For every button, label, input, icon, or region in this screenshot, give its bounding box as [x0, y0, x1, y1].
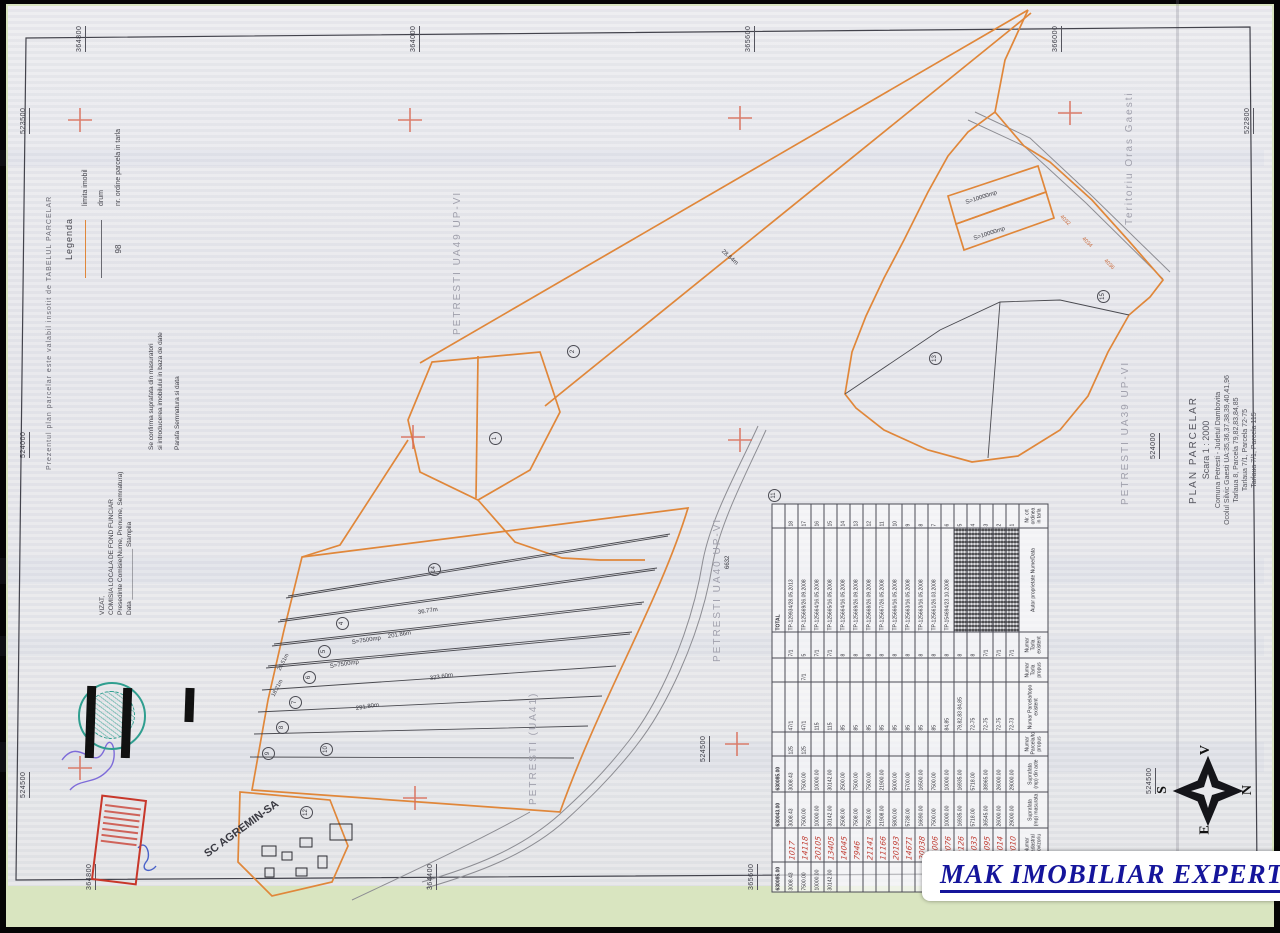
- parcel-ordinal: 9: [262, 747, 275, 760]
- table-row: 140452508.002500.00858TP-125664/16.05.20…: [837, 504, 850, 892]
- cell: TP-125663/16.05.2008: [915, 528, 928, 632]
- cell: [863, 658, 876, 682]
- title-line: Comuna Petresti - Judetul Dambovita: [1214, 325, 1223, 575]
- cell: 7500.00: [798, 862, 811, 892]
- cell: 30142.00: [824, 756, 837, 792]
- coord-label: 524000: [20, 432, 30, 458]
- cell: 47/1: [785, 682, 798, 732]
- cell: [928, 732, 941, 756]
- cell: TP-125666/16.05.2008: [889, 528, 902, 632]
- legend-sample: 98: [114, 220, 123, 278]
- cell: 1: [1006, 504, 1019, 528]
- header-cell: Suprafata (mp) masurata: [1019, 792, 1048, 828]
- cell: 7/1: [811, 632, 824, 658]
- cell: 16690.00: [915, 792, 928, 828]
- cell: 13405: [824, 827, 837, 863]
- cell: 85: [889, 682, 902, 732]
- title-line: Tarlaua 7/1, Parcela 115: [1250, 325, 1259, 575]
- cell: 14045: [837, 827, 850, 863]
- cell: 7500.00: [850, 756, 863, 792]
- cell: 29000.00: [1006, 756, 1019, 792]
- cell: 26000.00: [993, 756, 1006, 792]
- legend-item: drum: [98, 48, 105, 278]
- coord-label: 524500: [20, 772, 30, 798]
- cell: 16500.00: [915, 756, 928, 792]
- cell: 8: [915, 504, 928, 528]
- cell: 8: [954, 632, 967, 658]
- cell: 85: [837, 682, 850, 732]
- coord-label: 523500: [20, 108, 30, 134]
- cell: TP-129934/28.05.2013: [785, 528, 798, 632]
- parcel-ordinal: 10: [320, 743, 333, 756]
- title-block: PLAN PARCELARScara 1 : 2000Comuna Petres…: [1188, 325, 1268, 575]
- cell: 7/1: [993, 632, 1006, 658]
- cell: 85: [902, 682, 915, 732]
- parcel-ordinal: 8: [276, 721, 289, 734]
- coord-label: 366000: [1052, 26, 1062, 52]
- cell: 30142.00: [824, 862, 837, 892]
- cert-line: Data ______________ Stampila: [125, 430, 134, 615]
- cell: 8: [902, 632, 915, 658]
- cell: 5: [954, 504, 967, 528]
- legend-sample: [85, 220, 86, 278]
- cell: 47/1: [798, 682, 811, 732]
- cell: [993, 528, 1006, 632]
- legend-label: nr. ordine parcela in tarla: [115, 129, 122, 206]
- cell: [967, 528, 980, 632]
- cell: 7/1: [1006, 632, 1019, 658]
- cell: [889, 658, 902, 682]
- cell: 115: [824, 682, 837, 732]
- cell: 7946: [850, 827, 863, 863]
- region-label: PETRESTI UA39 UP-VI: [1120, 361, 1131, 505]
- cell: [772, 504, 785, 528]
- plan-border: [16, 27, 1257, 880]
- cell: [772, 682, 785, 732]
- cell: [772, 732, 785, 756]
- table-row: 10000.002010510000.0010000.001157/1TP-12…: [811, 504, 824, 892]
- cell: [941, 658, 954, 682]
- logo-text: MAK IMOBILIAR EXPERT: [940, 859, 1280, 893]
- cell: 8: [876, 632, 889, 658]
- cell: 72-75: [993, 682, 1006, 732]
- cert-line: Presedinte Comisie(Nume, Prenume, Semnat…: [116, 430, 125, 615]
- region-label: PETRESTI UA49 UP-VI: [452, 191, 463, 335]
- cell: 85: [915, 682, 928, 732]
- cell: [863, 862, 876, 892]
- cell: 85: [850, 682, 863, 732]
- cert-line: VIZAT,: [98, 430, 107, 615]
- title-line: Scara 1 : 2000: [1201, 325, 1211, 575]
- cell: [1006, 528, 1019, 632]
- cell: [837, 732, 850, 756]
- cell: [1006, 658, 1019, 682]
- cell: [889, 732, 902, 756]
- cell: 29000.00: [1006, 792, 1019, 828]
- cell: 8: [915, 632, 928, 658]
- cell: 38965.00: [980, 756, 993, 792]
- vizat-block: VIZAT,COMISIA LOCALA DE FOND FUNCIARPres…: [98, 430, 153, 615]
- cell: [811, 732, 824, 756]
- cell: [993, 658, 1006, 682]
- cell: 630085.00: [772, 862, 785, 892]
- cell: 10000.00: [941, 756, 954, 792]
- cell: 5800.00: [889, 792, 902, 828]
- cell: 630043.00: [772, 792, 785, 828]
- cell: [954, 732, 967, 756]
- cell: 10000.00: [941, 792, 954, 828]
- cell: [772, 828, 785, 862]
- cell: 16935.00: [954, 792, 967, 828]
- table-header-row: Suprafata (mp)Numar Cadastral Provizoriu…: [1019, 504, 1048, 892]
- cell: 7/1: [798, 658, 811, 682]
- header-cell: Numar Parcela/topo propus: [1019, 732, 1048, 756]
- cell: [824, 658, 837, 682]
- cell: 7500.00: [863, 756, 876, 792]
- coord-label: 522800: [1244, 108, 1254, 134]
- cell: 36545.00: [980, 792, 993, 828]
- table-row: 146715738.005700.00858TP-125663/16.05.20…: [902, 504, 915, 892]
- cell: [915, 658, 928, 682]
- cell: [980, 732, 993, 756]
- cell: TP-125663/16.05.2008: [902, 528, 915, 632]
- cell: 8: [889, 632, 902, 658]
- cell: 10000.00: [811, 792, 824, 828]
- legend-title: Legenda: [64, 48, 74, 260]
- cell: [902, 658, 915, 682]
- table-row: 7500.00141187500.007500.0012547/17/15TP-…: [798, 504, 811, 892]
- cell: 21141: [863, 827, 876, 863]
- cell: [928, 658, 941, 682]
- cell: [850, 862, 863, 892]
- cert-line: si introducerea imobilului in baza de da…: [157, 300, 166, 450]
- cell: 8: [941, 632, 954, 658]
- cell: 72-75: [967, 682, 980, 732]
- region-label: Teritoriu Oras Gaesti: [1124, 91, 1135, 225]
- compass-letter-bottom: E: [1198, 825, 1214, 834]
- cell: 10000.00: [811, 756, 824, 792]
- cell: [902, 732, 915, 756]
- cell: 1017: [785, 827, 798, 863]
- cell: [876, 658, 889, 682]
- table-row: 210335718.005718.0072-7584: [967, 504, 980, 892]
- header-cell: Suprafata (mp) din acte: [1019, 756, 1048, 792]
- cell: 8: [863, 632, 876, 658]
- cell: TP-125665/16.05.2008: [824, 528, 837, 632]
- cell: 5738.00: [902, 792, 915, 828]
- cell: TP-125664/16.05.2008: [811, 528, 824, 632]
- cell: [850, 732, 863, 756]
- cell: 125: [785, 732, 798, 756]
- cell: 17: [798, 504, 811, 528]
- cell: 630085.00: [772, 756, 785, 792]
- cell: [837, 658, 850, 682]
- map-annotation: 6632: [725, 556, 731, 569]
- cell: 8: [928, 632, 941, 658]
- cert-line: [165, 300, 174, 450]
- cell: 8: [967, 632, 980, 658]
- parcel-ordinal: 5: [318, 645, 331, 658]
- table-row: 2012616935.0016935.0079,82,83 84,8585: [954, 504, 967, 892]
- cell: [889, 862, 902, 892]
- cell: 5: [798, 632, 811, 658]
- cell: [876, 862, 889, 892]
- cell: 20105: [811, 827, 824, 863]
- legend: Legenda limita imobildrum98nr. ordine pa…: [64, 48, 176, 278]
- cell: TP-125669/26.09.2008: [850, 528, 863, 632]
- margin-note: Prezentul plan parcelar este valabil ins…: [46, 196, 55, 470]
- cell: [811, 658, 824, 682]
- cell: 7/1: [824, 632, 837, 658]
- cell: 5718.00: [967, 792, 980, 828]
- title-line: Tarlaua 7/1, Parcela 72-75: [1241, 325, 1250, 575]
- cell: 5700.00: [902, 756, 915, 792]
- cell: [876, 732, 889, 756]
- cell: TP-125664/16.05.2008: [837, 528, 850, 632]
- cell: TOTAL: [772, 528, 785, 632]
- cell: 2: [993, 504, 1006, 528]
- table-row: 211417508.007500.00858TP-125668/26.09.20…: [863, 504, 876, 892]
- title-line: PLAN PARCELAR: [1188, 325, 1199, 575]
- coord-label: 365600: [745, 26, 755, 52]
- cell: TP-125661/26.03.2008: [928, 528, 941, 632]
- cell: 30142.00: [824, 792, 837, 828]
- table-row: 3008.4310173008.433008.4312547/17/1TP-12…: [785, 504, 798, 892]
- cell: [837, 862, 850, 892]
- cell: TP-125668/26.09.2008: [863, 528, 876, 632]
- cell: 15: [824, 504, 837, 528]
- cell: 7508.00: [850, 792, 863, 828]
- cell: [863, 732, 876, 756]
- cell: 125: [798, 732, 811, 756]
- cell: 7500.00: [928, 756, 941, 792]
- table-row: 79467508.007500.00858TP-125669/26.09.200…: [850, 504, 863, 892]
- cell: 3008.43: [785, 756, 798, 792]
- cell: 7: [928, 504, 941, 528]
- table-row: 2109536545.0038965.0072-757/13: [980, 504, 993, 892]
- cell: 13: [850, 504, 863, 528]
- legend-label: limita imobil: [82, 169, 89, 206]
- cell: 14671: [902, 827, 915, 863]
- cell: [850, 658, 863, 682]
- cell: 2500.00: [837, 756, 850, 792]
- coord-label: 364000: [410, 26, 420, 52]
- cell: 8: [850, 632, 863, 658]
- cell: [954, 528, 967, 632]
- cell: [967, 732, 980, 756]
- cell: 84,85: [941, 682, 954, 732]
- cell: 5000.00: [889, 756, 902, 792]
- header-cell: Numar Tarla existent: [1019, 632, 1048, 658]
- confirmation-block: Se confirma suprafata din masuratorisi i…: [148, 300, 208, 450]
- coord-label: 524000: [1150, 433, 1160, 459]
- table-row: 1116621908.0021900.00858TP-125667/26.05.…: [876, 504, 889, 892]
- region-label: PETRESTI UA40 UP-VI: [712, 518, 723, 662]
- cell: 8: [837, 632, 850, 658]
- cell: [1006, 732, 1019, 756]
- cell: 3: [980, 504, 993, 528]
- cell: [980, 528, 993, 632]
- compass-rose: V N E S: [1165, 748, 1251, 834]
- header-cell: Numar Tarla propus: [1019, 658, 1048, 682]
- cell: 26000.00: [993, 792, 1006, 828]
- compass-letter-right: N: [1240, 785, 1256, 795]
- table-row: 2401426000.0026000.0072-757/12: [993, 504, 1006, 892]
- parcel-ordinal: 2: [567, 345, 580, 358]
- header-cell: Autor proprietate Nume/Data: [1019, 528, 1048, 632]
- cell: 10000.00: [811, 862, 824, 892]
- table-row: 240067500.007500.00858TP-125661/26.03.20…: [928, 504, 941, 892]
- cell: 10: [889, 504, 902, 528]
- parcel-ordinal: 6: [303, 671, 316, 684]
- cell: 18: [785, 504, 798, 528]
- cell: 20193: [889, 827, 902, 863]
- redaction-bar: [184, 688, 194, 722]
- cell: [772, 658, 785, 682]
- cell: 85: [863, 682, 876, 732]
- cell: 11166: [876, 827, 889, 863]
- legend-line-icon: [101, 220, 102, 278]
- legend-line-orange-icon: [85, 220, 86, 278]
- legend-label: drum: [98, 190, 105, 206]
- cert-line: Se confirma suprafata din masuratori: [148, 300, 157, 450]
- title-line: Tarlaua 8, Parcela 79,82,83,84,85: [1232, 325, 1241, 575]
- cell: [915, 732, 928, 756]
- cell: [785, 658, 798, 682]
- parcel-ordinal: 11: [768, 489, 781, 502]
- cell: 72-75: [980, 682, 993, 732]
- cell: TP-125669/26.09.2008: [798, 528, 811, 632]
- table-row: 201935800.005000.00858TP-125666/16.05.20…: [889, 504, 902, 892]
- cell: 79,82,83 84,85: [954, 682, 967, 732]
- cell: 21900.00: [876, 756, 889, 792]
- cell: 14118: [798, 827, 811, 863]
- cell: [772, 632, 785, 658]
- cell: TP-125667/26.05.2008: [876, 528, 889, 632]
- compass-letter-top: V: [1198, 745, 1214, 755]
- cell: 7508.00: [863, 792, 876, 828]
- table-row: 2001029000.0029000.0072-737/11: [1006, 504, 1019, 892]
- cell: 11: [876, 504, 889, 528]
- cell: 85: [876, 682, 889, 732]
- parcel-table-wrap: 630085.00630043.00630085.00TOTAL3008.431…: [772, 505, 1045, 893]
- coord-label: 524500: [700, 736, 710, 762]
- table-total-row: 630085.00630043.00630085.00TOTAL: [772, 504, 785, 892]
- parcel-ordinal: 14: [428, 563, 441, 576]
- parcel-table: 630085.00630043.00630085.00TOTAL3008.431…: [772, 504, 1049, 893]
- cert-line: Parafa Semnatura si data: [174, 300, 183, 450]
- parcel-ordinal: 7: [289, 696, 302, 709]
- cell: 85: [928, 682, 941, 732]
- cell: 7500.00: [798, 792, 811, 828]
- cell: 21908.00: [876, 792, 889, 828]
- parcel-ordinal: 12: [300, 806, 313, 819]
- cell: 115: [811, 682, 824, 732]
- table-row: 30142.001340530142.0030142.001157/1TP-12…: [824, 504, 837, 892]
- coord-label: 364400: [427, 864, 437, 890]
- cell: TP-154694/23.10.2008: [941, 528, 954, 632]
- cell: 7500.00: [928, 792, 941, 828]
- cell: 7/1: [980, 632, 993, 658]
- parcel-ordinal: 4: [336, 617, 349, 630]
- cell: [954, 658, 967, 682]
- cell: 72-73: [1006, 682, 1019, 732]
- cell: 7500.00: [798, 756, 811, 792]
- logo-band: MAK IMOBILIAR EXPERT: [922, 851, 1280, 901]
- map-drawing: [0, 0, 1280, 933]
- cell: [824, 732, 837, 756]
- table-row: 2003816690.0016500.00858TP-125663/16.05.…: [915, 504, 928, 892]
- cell: 12: [863, 504, 876, 528]
- region-label: PETRESTI (UA41): [528, 692, 539, 805]
- parcel-ordinal: 15: [1097, 290, 1110, 303]
- compass-letter-left: S: [1155, 786, 1171, 794]
- cell: 16: [811, 504, 824, 528]
- cell: 6: [941, 504, 954, 528]
- cell: 16935.00: [954, 756, 967, 792]
- cell: [980, 658, 993, 682]
- header-cell: Nr. crt ordinea in tarla: [1019, 504, 1048, 528]
- compass-star: [1165, 748, 1251, 834]
- cell: [993, 732, 1006, 756]
- cell: 9: [902, 504, 915, 528]
- cert-line: COMISIA LOCALA DE FOND FUNCIAR: [107, 430, 116, 615]
- parcel-ordinal: 13: [929, 352, 942, 365]
- cell: 4: [967, 504, 980, 528]
- legend-number: 98: [114, 245, 123, 254]
- table-row: 2007610000.0010000.0084,858TP-154694/23.…: [941, 504, 954, 892]
- legend-items: limita imobildrum98nr. ordine parcela in…: [82, 48, 123, 278]
- legend-item: 98nr. ordine parcela in tarla: [114, 48, 123, 278]
- legend-sample: [101, 220, 102, 278]
- coord-label: 365600: [748, 864, 758, 890]
- cell: 5718.00: [967, 756, 980, 792]
- cell: [902, 862, 915, 892]
- cell: [941, 732, 954, 756]
- cell: 7/1: [785, 632, 798, 658]
- cell: 14: [837, 504, 850, 528]
- parcel-ordinal: 1: [489, 432, 502, 445]
- cell: [967, 658, 980, 682]
- header-cell: Numar Parcela/topo existent: [1019, 682, 1048, 732]
- cell: 2508.00: [837, 792, 850, 828]
- title-line: Ocolul Silvic Gaesti UA:35,36,37,38,39,4…: [1223, 325, 1232, 575]
- cell: 3008.43: [785, 792, 798, 828]
- scanned-plan-parcelar: 3648003640003656003660003648003644003656…: [0, 0, 1280, 933]
- cell: 3008.43: [785, 862, 798, 892]
- legend-item: limita imobil: [82, 48, 89, 278]
